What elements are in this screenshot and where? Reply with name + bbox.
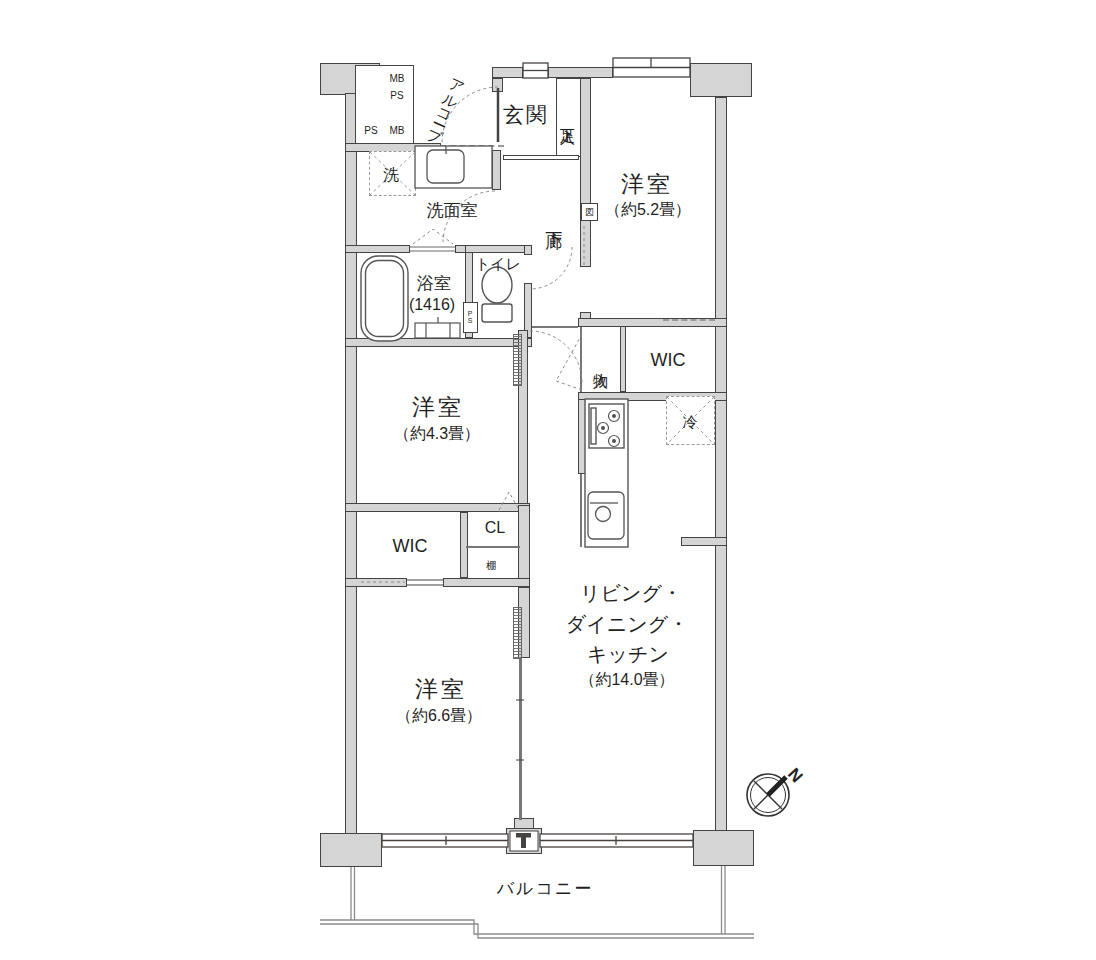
room-label-entrance: 玄関 [503,104,549,125]
room-size-bedroom43: （約4.3畳） [394,426,480,442]
hall-ldk-door-arc [530,331,582,383]
room-label-bedroom43: 洋室 [412,396,464,419]
window-top-small [523,63,548,78]
room-label-toilet: トイレ [475,256,521,271]
room-label-wic-bottom: WIC [393,537,428,555]
room-size-bath: (1416) [409,297,455,313]
bath-door-mark [413,229,453,244]
washer-label: 洗 [383,167,399,183]
bath-counter [415,317,460,338]
cl-door-mark [499,492,519,510]
t-pillar-mark [510,831,538,851]
shelf-label: 棚 [486,561,496,571]
kitchen-sink [588,492,624,539]
fridge-label: 冷 [683,414,698,429]
shaft-label-ps: PS [390,91,403,101]
room-size-bedroom66: （約6.6畳） [396,708,482,724]
shaft-label-ps: PS [364,126,377,136]
floor-plan: N アルコーブ MB PS PS MB 玄関 下足入 廊下 図 洋室 （約5.2… [0,0,1096,960]
room-label-wic-top: WIC [651,351,686,369]
toilet-icon [482,267,512,322]
room-label-ldk-line3: キッチン [587,644,669,664]
shaft-label-ps-small: PS [467,310,474,324]
door-leaves [407,88,524,760]
room-size-ldk: （約14.0畳） [579,672,674,688]
room-label-ldk-line2: ダイニング・ [566,614,688,634]
toilet-door-arc [530,247,572,289]
compass: N [747,764,806,816]
window-room52 [613,58,690,77]
room-label-balcony: バルコニー [497,880,594,897]
room-label-bath: 浴室 [417,275,451,292]
window-balcony-left [382,834,508,847]
balcony-railing [320,866,754,938]
fixtures-layer: N [0,0,1096,960]
room-label-washroom: 洗面室 [427,202,478,219]
shaft-label-mb: MB [390,74,405,84]
room-label-bedroom52: 洋室 [621,173,673,196]
window-balcony-right [540,834,693,847]
panel-label: 図 [585,208,594,217]
room-label-cl: CL [485,520,505,536]
shaft-label-mb: MB [390,126,405,136]
washbasin [415,146,492,188]
room-label-ldk-line1: リビング・ [580,583,682,603]
room-label-bedroom66: 洋室 [415,678,467,701]
compass-n-label: N [784,764,806,786]
bathtub [361,256,408,341]
room-size-bedroom52: （約5.2畳） [605,202,691,218]
